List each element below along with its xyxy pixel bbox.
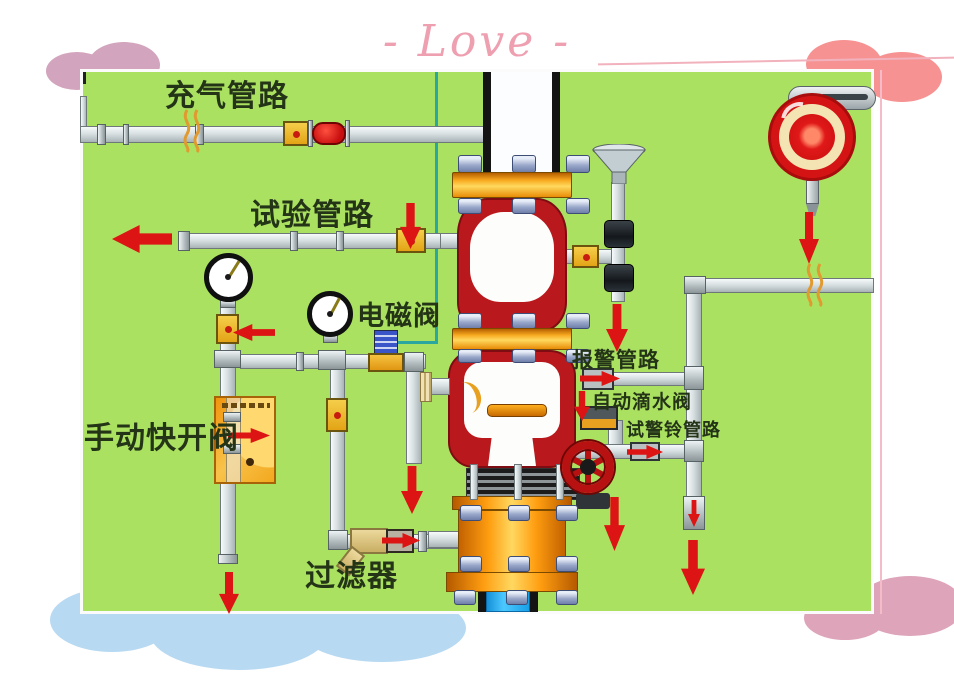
supply-cylinder-bottom-flange	[446, 572, 578, 592]
charging-line-valve	[283, 121, 309, 146]
cylinder-bolt	[556, 590, 578, 605]
test-line-label: 试验管路	[250, 201, 374, 231]
valve-middle-flange	[452, 328, 572, 350]
cylinder-bolt	[556, 505, 578, 521]
pipe-end-cap	[218, 554, 238, 564]
panel-caption-marks	[222, 403, 270, 408]
pipe-coupling	[97, 124, 106, 145]
cylinder-bolt	[460, 505, 482, 521]
handwheel-valve-base	[576, 493, 610, 509]
clapper-plate	[487, 404, 547, 417]
grille-post	[514, 464, 522, 500]
alarm-bell-test-line-label: 试警铃管路	[626, 422, 721, 440]
charging-pipe-end-tick	[83, 72, 86, 84]
cylinder-bolt	[508, 505, 530, 521]
pressure-gauge-center-hub	[327, 311, 333, 317]
diagram-panel-pink-edge	[880, 70, 882, 614]
solenoid-coil	[374, 330, 398, 355]
control-line-horizontal	[392, 341, 438, 344]
flange-bolt	[566, 198, 590, 214]
flange-bolt	[458, 155, 482, 173]
flange-bolt	[512, 313, 536, 329]
elbow-fitting	[684, 276, 706, 294]
auto-drip-valve-label: 自动滴水阀	[592, 393, 692, 412]
pipe-coupling	[418, 531, 427, 552]
riser-pipe-wall-right	[552, 72, 560, 174]
flange-bolt	[566, 155, 590, 173]
funnel-pipe-valve-handle	[604, 220, 634, 248]
pipe-coupling	[290, 231, 298, 251]
charging-pipe-left-riser	[80, 96, 87, 130]
filter-label: 过滤器	[305, 562, 398, 592]
tee-fitting	[684, 440, 704, 462]
cylinder-left-port	[428, 531, 460, 548]
left-drain-valve	[216, 314, 239, 344]
handwheel-hub	[580, 459, 596, 475]
flange-bolt	[458, 349, 482, 363]
cylinder-bolt	[506, 590, 528, 605]
pipe-coupling	[123, 124, 129, 145]
solenoid-valve-body	[368, 353, 404, 372]
manual-quick-open-valve-label: 手动快开阀	[84, 424, 239, 454]
alarm-port-valve	[572, 245, 599, 268]
grille-post	[470, 464, 478, 500]
pipe-coupling	[336, 231, 344, 251]
alarm-line-label: 报警管路	[572, 350, 660, 371]
water-supply-pipe-wall	[478, 591, 486, 612]
tee-fitting	[684, 366, 704, 390]
cylinder-bolt	[460, 556, 482, 572]
flange-bolt	[458, 313, 482, 329]
pipe-end-cap	[178, 231, 190, 251]
elbow-fitting	[328, 530, 348, 550]
pressure-gauge-left-hub	[225, 274, 231, 280]
water-supply-pipe-wall	[530, 591, 538, 612]
flange-bolt	[512, 349, 536, 363]
gong-stem	[806, 180, 819, 204]
pipe-break-symbol	[802, 262, 828, 308]
presentation-slide: - Love - 充气管路	[0, 0, 954, 679]
charging-line-label: 充气管路	[165, 82, 289, 112]
cylinder-bolt	[454, 590, 476, 605]
charging-line-red-valve	[312, 122, 346, 145]
cylinder-bolt	[556, 556, 578, 572]
flange-bolt	[458, 198, 482, 214]
gong-supply-pipe	[700, 278, 874, 293]
tee-fitting	[214, 350, 241, 368]
pipe-break-symbol	[179, 108, 205, 154]
riser-pipe-wall-left	[483, 72, 491, 174]
cylinder-bolt	[508, 556, 530, 572]
flange-bolt	[566, 313, 590, 329]
alarm-valve-outlet-interior	[488, 436, 536, 466]
alarm-valve-upper-chamber-interior	[470, 212, 554, 302]
chamber-left-port-trumpet	[420, 372, 432, 402]
drain-funnel	[592, 144, 646, 184]
cross-fitting	[318, 350, 346, 370]
pipe-coupling	[296, 352, 304, 371]
filter-branch-pipe	[330, 368, 345, 540]
flange-bolt	[512, 198, 536, 214]
filter-branch-valve	[326, 398, 348, 432]
flange-bolt	[512, 155, 536, 173]
solenoid-valve-label: 电磁阀	[357, 303, 441, 330]
funnel-pipe-valve-handle	[604, 264, 634, 292]
upper-valve-top-flange	[452, 172, 572, 198]
elbow-fitting	[404, 352, 424, 372]
chamber-left-port-stub	[430, 378, 450, 395]
panel-indicator-dot	[246, 458, 254, 466]
